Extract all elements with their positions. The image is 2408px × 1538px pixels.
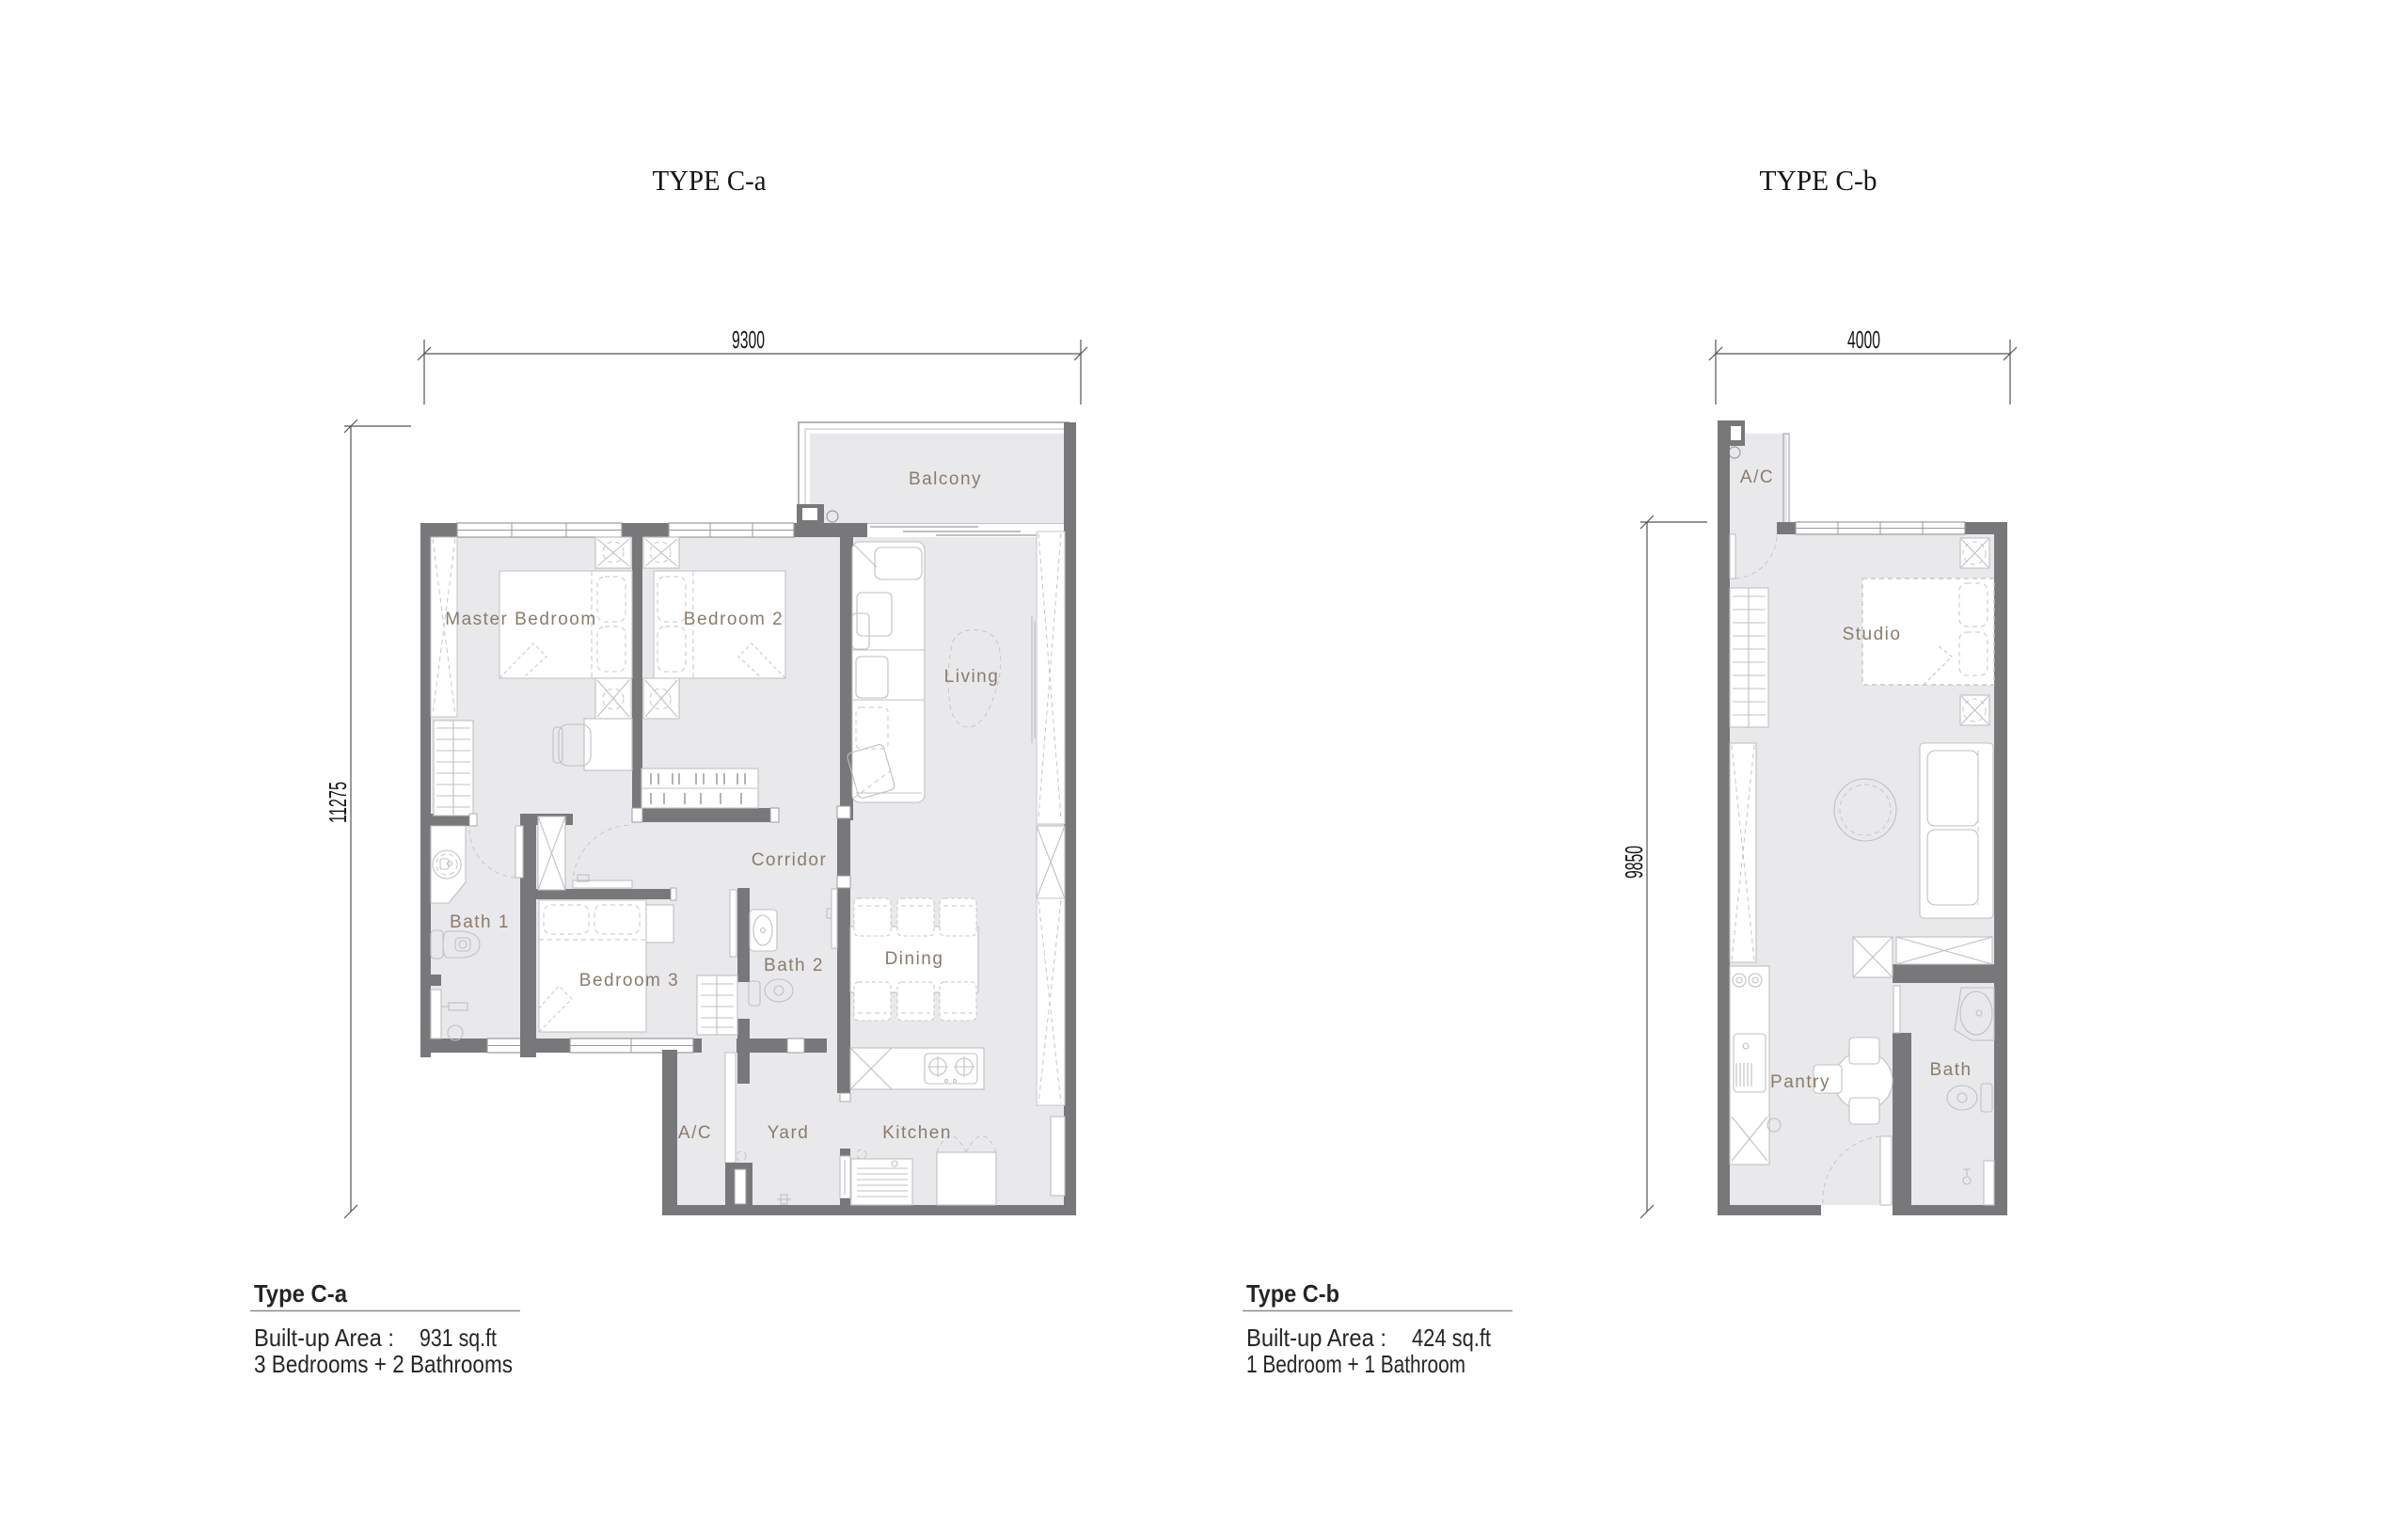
svg-text:Dining: Dining [885,949,944,969]
svg-text:9850: 9850 [1620,846,1648,879]
svg-text:A/C: A/C [678,1123,712,1143]
svg-text:TYPE C-b: TYPE C-b [1760,164,1877,197]
svg-text:1 Bedroom + 1 Bathroom: 1 Bedroom + 1 Bathroom [1246,1350,1465,1378]
svg-text:Kitchen: Kitchen [882,1123,952,1143]
svg-text:Built-up Area :: Built-up Area : [254,1324,394,1352]
svg-text:Master Bedroom: Master Bedroom [445,610,596,629]
svg-text:4000: 4000 [1847,325,1880,354]
svg-text:Bath: Bath [1929,1060,1972,1080]
svg-text:3 Bedrooms + 2 Bathrooms: 3 Bedrooms + 2 Bathrooms [254,1350,513,1378]
svg-text:Type C-b: Type C-b [1246,1279,1339,1308]
svg-text:Type C-a: Type C-a [254,1279,347,1308]
svg-text:9300: 9300 [732,325,765,354]
svg-text:Bedroom 3: Bedroom 3 [579,971,679,991]
svg-text:Bath 2: Bath 2 [764,956,824,975]
svg-text:931 sq.ft: 931 sq.ft [420,1324,498,1352]
svg-text:424 sq.ft: 424 sq.ft [1412,1324,1492,1352]
svg-text:A/C: A/C [1740,468,1774,487]
svg-text:Studio: Studio [1843,625,1902,644]
svg-text:Living: Living [944,667,1000,687]
svg-text:Bath 1: Bath 1 [450,912,510,932]
svg-text:Built-up Area :: Built-up Area : [1246,1324,1386,1352]
svg-text:11275: 11275 [324,782,352,823]
svg-text:Corridor: Corridor [752,850,828,870]
svg-text:Balcony: Balcony [909,469,982,489]
svg-text:Yard: Yard [768,1123,810,1143]
svg-text:Pantry: Pantry [1770,1072,1830,1092]
svg-text:TYPE C-a: TYPE C-a [653,164,767,197]
svg-text:Bedroom 2: Bedroom 2 [684,610,784,629]
